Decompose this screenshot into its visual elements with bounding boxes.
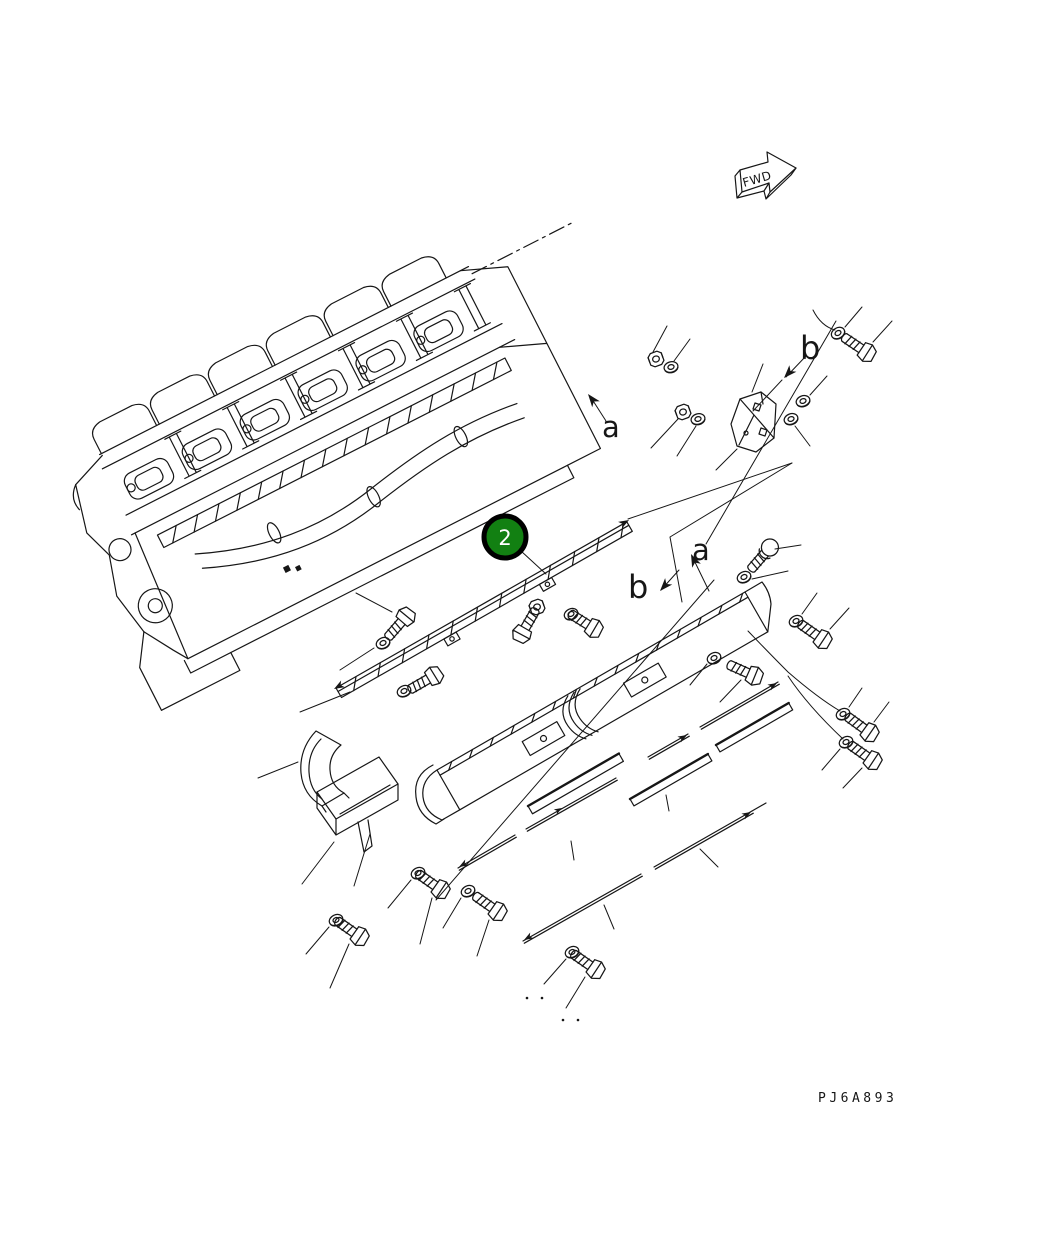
washer [787, 613, 804, 629]
bolt [724, 655, 766, 688]
washer [374, 635, 391, 651]
washer [459, 883, 476, 899]
part-callout-number: 2 [498, 526, 511, 550]
part-code: PJ6A893 [818, 1091, 897, 1106]
exploded-parts-drawing: FWD a b a b 2 PJ6A893 [0, 0, 1041, 1251]
fwd-direction-arrow: FWD [735, 152, 796, 199]
nut [674, 403, 692, 421]
leader-lines [258, 307, 892, 1008]
washer [663, 360, 679, 374]
view-label-b-top: b [800, 329, 820, 367]
engine-assembly [32, 188, 688, 710]
seal-rails [457, 680, 779, 943]
bolt [564, 605, 606, 641]
end-cap-bracket [301, 731, 349, 812]
washer [783, 412, 800, 427]
view-label-a-mid: a [692, 533, 710, 567]
parts-diagram-page: FWD a b a b 2 PJ6A893 [0, 0, 1041, 1251]
part-callout-2[interactable]: 2 [484, 516, 526, 558]
bolt [509, 604, 544, 646]
nut [647, 350, 665, 368]
washer [705, 650, 722, 666]
view-label-a-top: a [602, 410, 620, 444]
end-cap-box [317, 757, 398, 852]
part-2-heat-shield-strip [332, 517, 632, 698]
cover-channel-segments [528, 703, 793, 814]
exhaust-manifold-pipes [195, 393, 531, 593]
engine-shield-band [157, 358, 511, 548]
washer [395, 683, 412, 699]
bolt [743, 535, 781, 576]
engine-block-body [84, 251, 607, 673]
bolt [380, 604, 419, 645]
page-dots [526, 997, 580, 1022]
washer [795, 394, 812, 409]
washer [735, 569, 752, 585]
valve-cover-humps [83, 241, 475, 469]
crank-axis-line [472, 221, 575, 274]
view-label-b-mid: b [628, 568, 648, 606]
washer [690, 412, 706, 426]
mounting-bracket [731, 392, 776, 452]
bolt [566, 945, 608, 982]
